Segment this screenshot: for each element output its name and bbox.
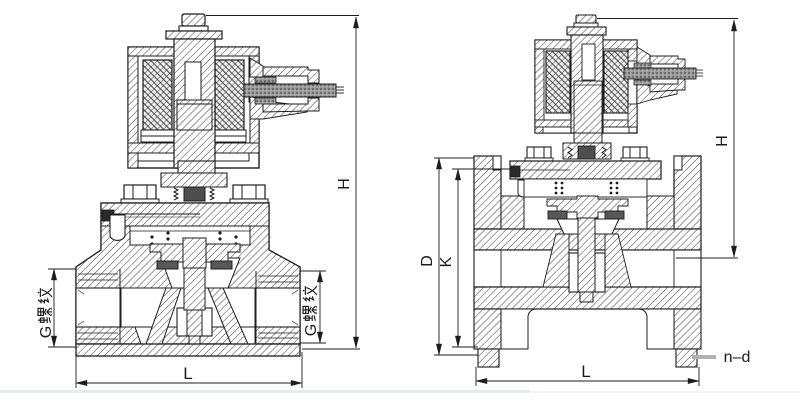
svg-text:G: G	[303, 324, 320, 336]
svg-text:H: H	[336, 178, 353, 190]
svg-text:H: H	[714, 135, 731, 147]
svg-text:L: L	[581, 362, 590, 381]
svg-text:G: G	[38, 326, 55, 338]
svg-text:D: D	[419, 255, 436, 267]
svg-text:K: K	[438, 256, 455, 267]
svg-text:n–d: n–d	[724, 349, 751, 366]
svg-text:L: L	[183, 364, 192, 383]
